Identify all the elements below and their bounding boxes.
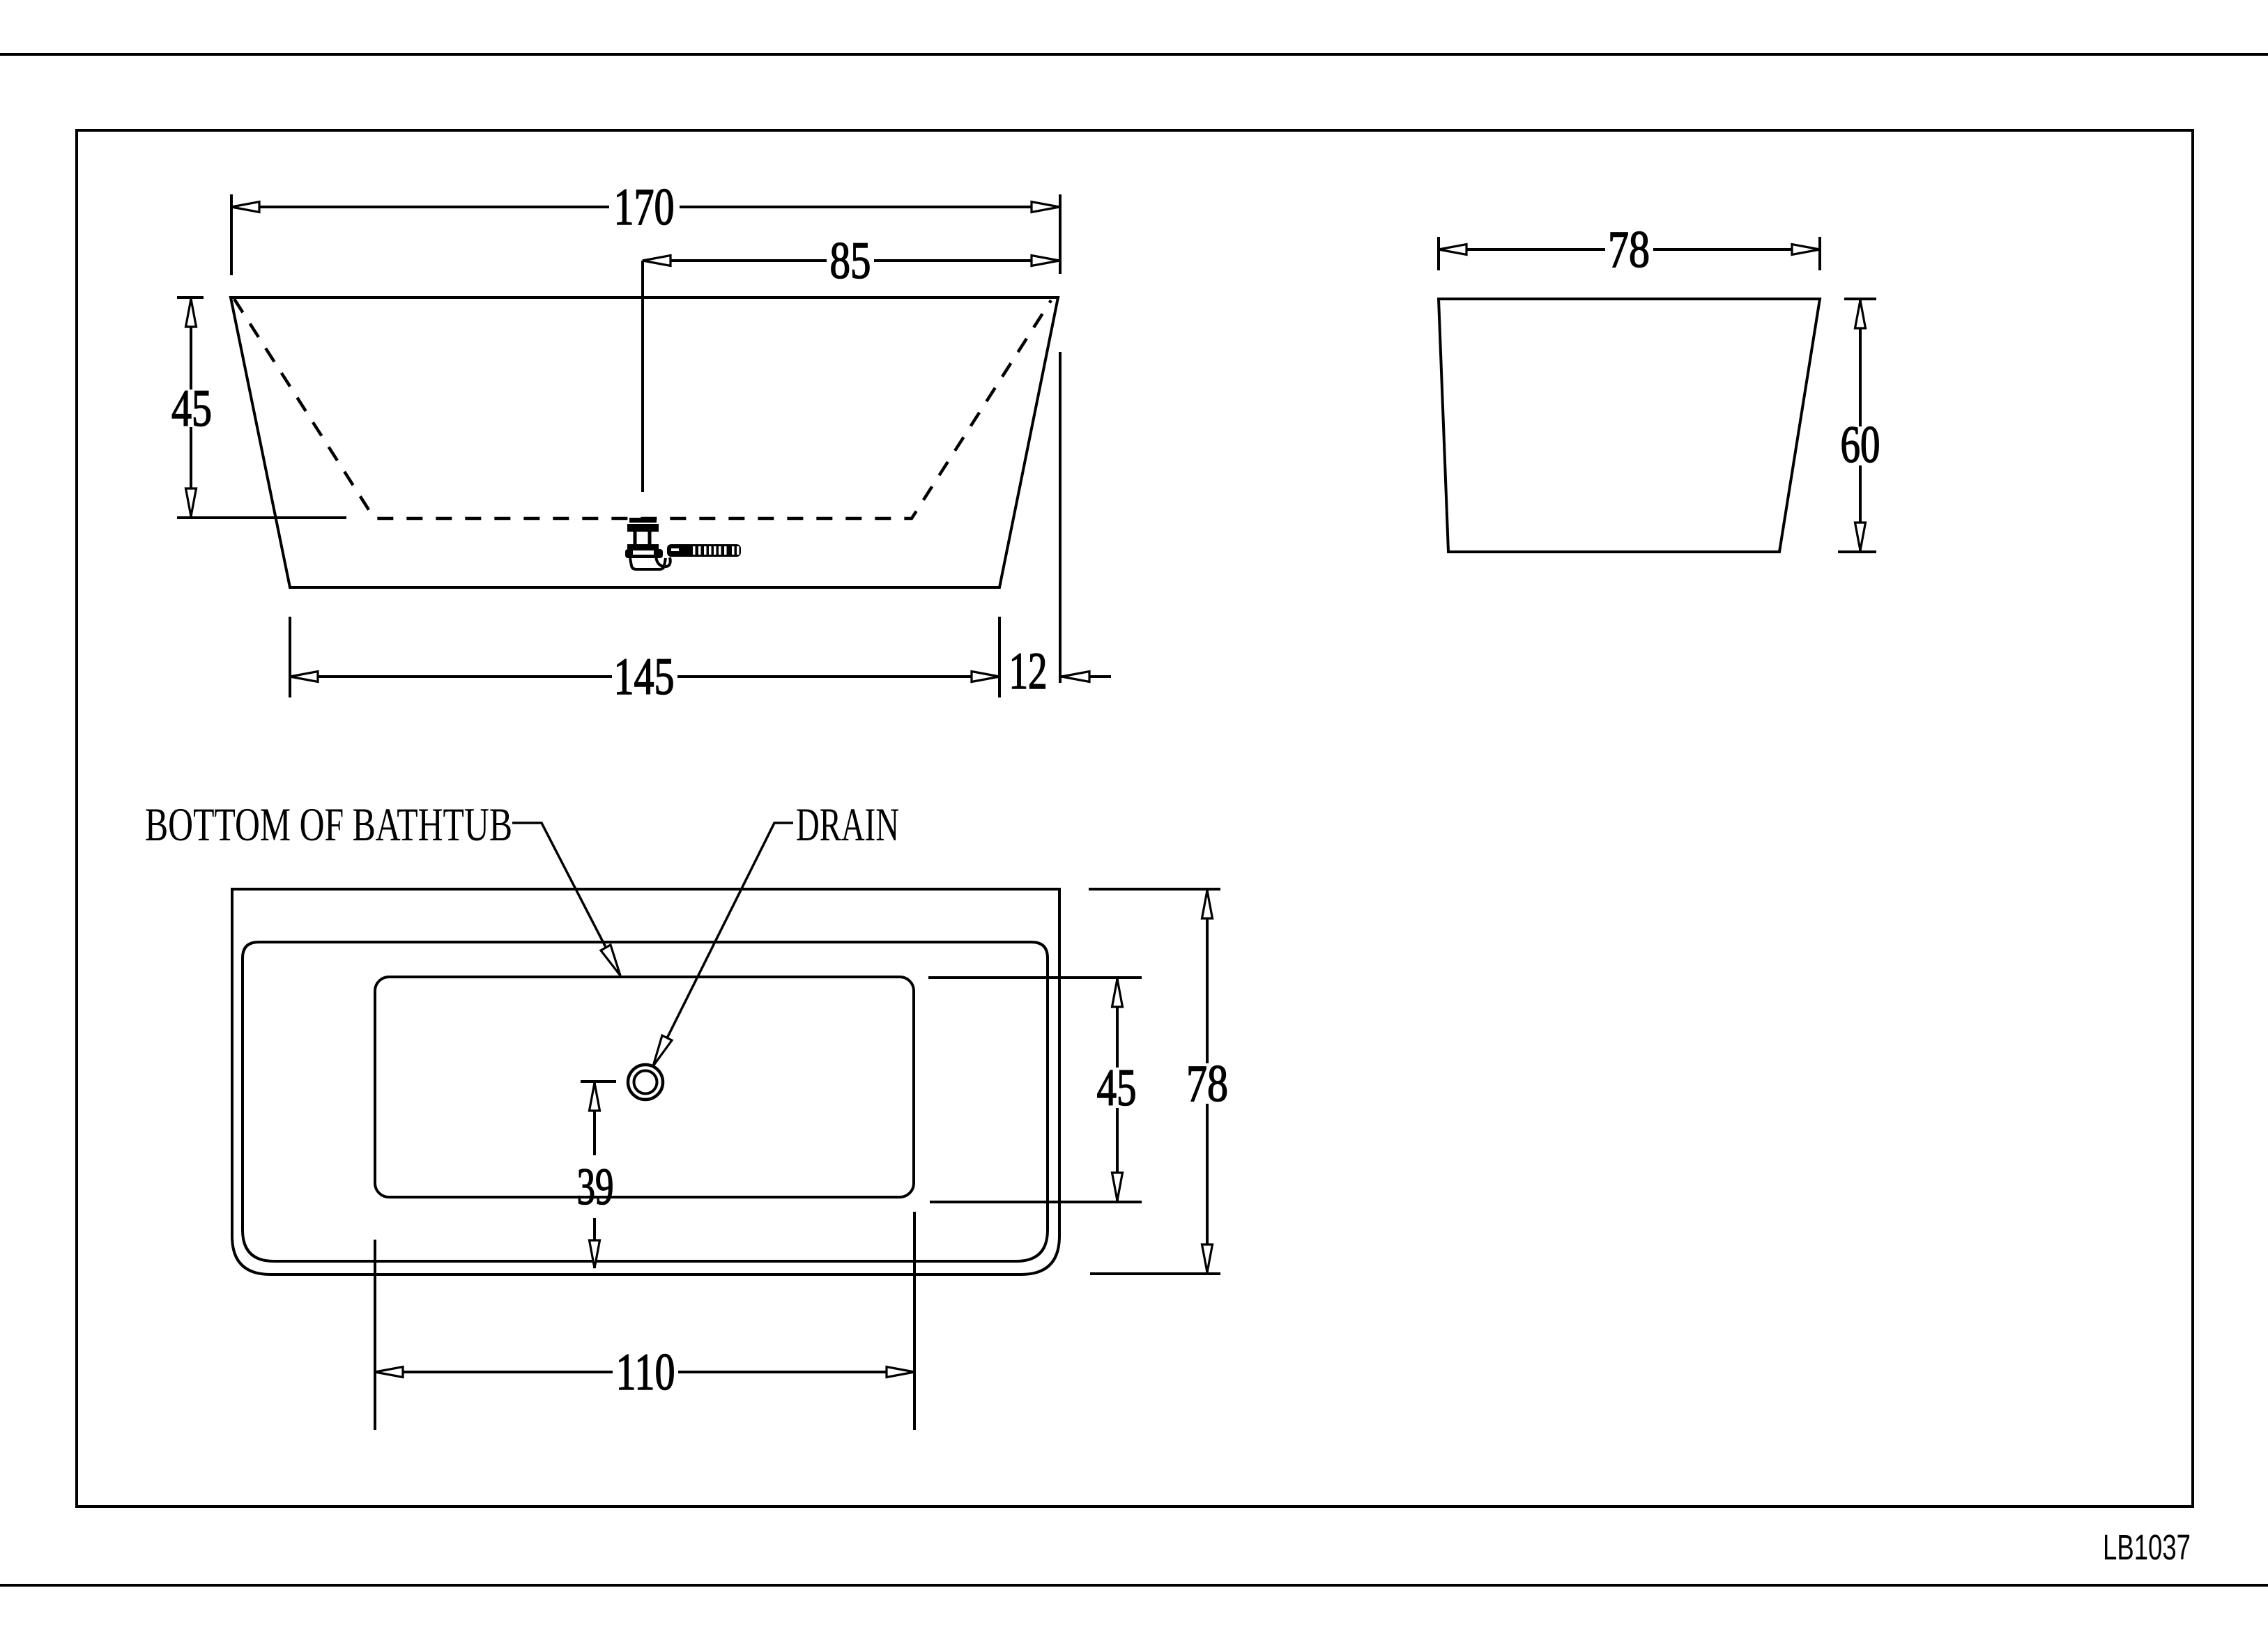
svg-text:BOTTOM OF BATHTUB: BOTTOM OF BATHTUB [145, 798, 512, 851]
svg-text:45: 45 [171, 380, 212, 438]
svg-text:LB1037: LB1037 [2103, 1527, 2191, 1567]
svg-text:85: 85 [830, 232, 871, 290]
svg-text:60: 60 [1841, 416, 1880, 474]
svg-text:39: 39 [577, 1158, 614, 1216]
svg-text:78: 78 [1608, 221, 1650, 279]
svg-text:110: 110 [616, 1343, 675, 1401]
svg-text:DRAIN: DRAIN [796, 798, 899, 851]
svg-text:12: 12 [1009, 642, 1048, 700]
svg-text:45: 45 [1097, 1059, 1137, 1117]
svg-text:145: 145 [614, 648, 675, 706]
svg-text:78: 78 [1186, 1055, 1228, 1113]
svg-text:170: 170 [614, 178, 675, 236]
